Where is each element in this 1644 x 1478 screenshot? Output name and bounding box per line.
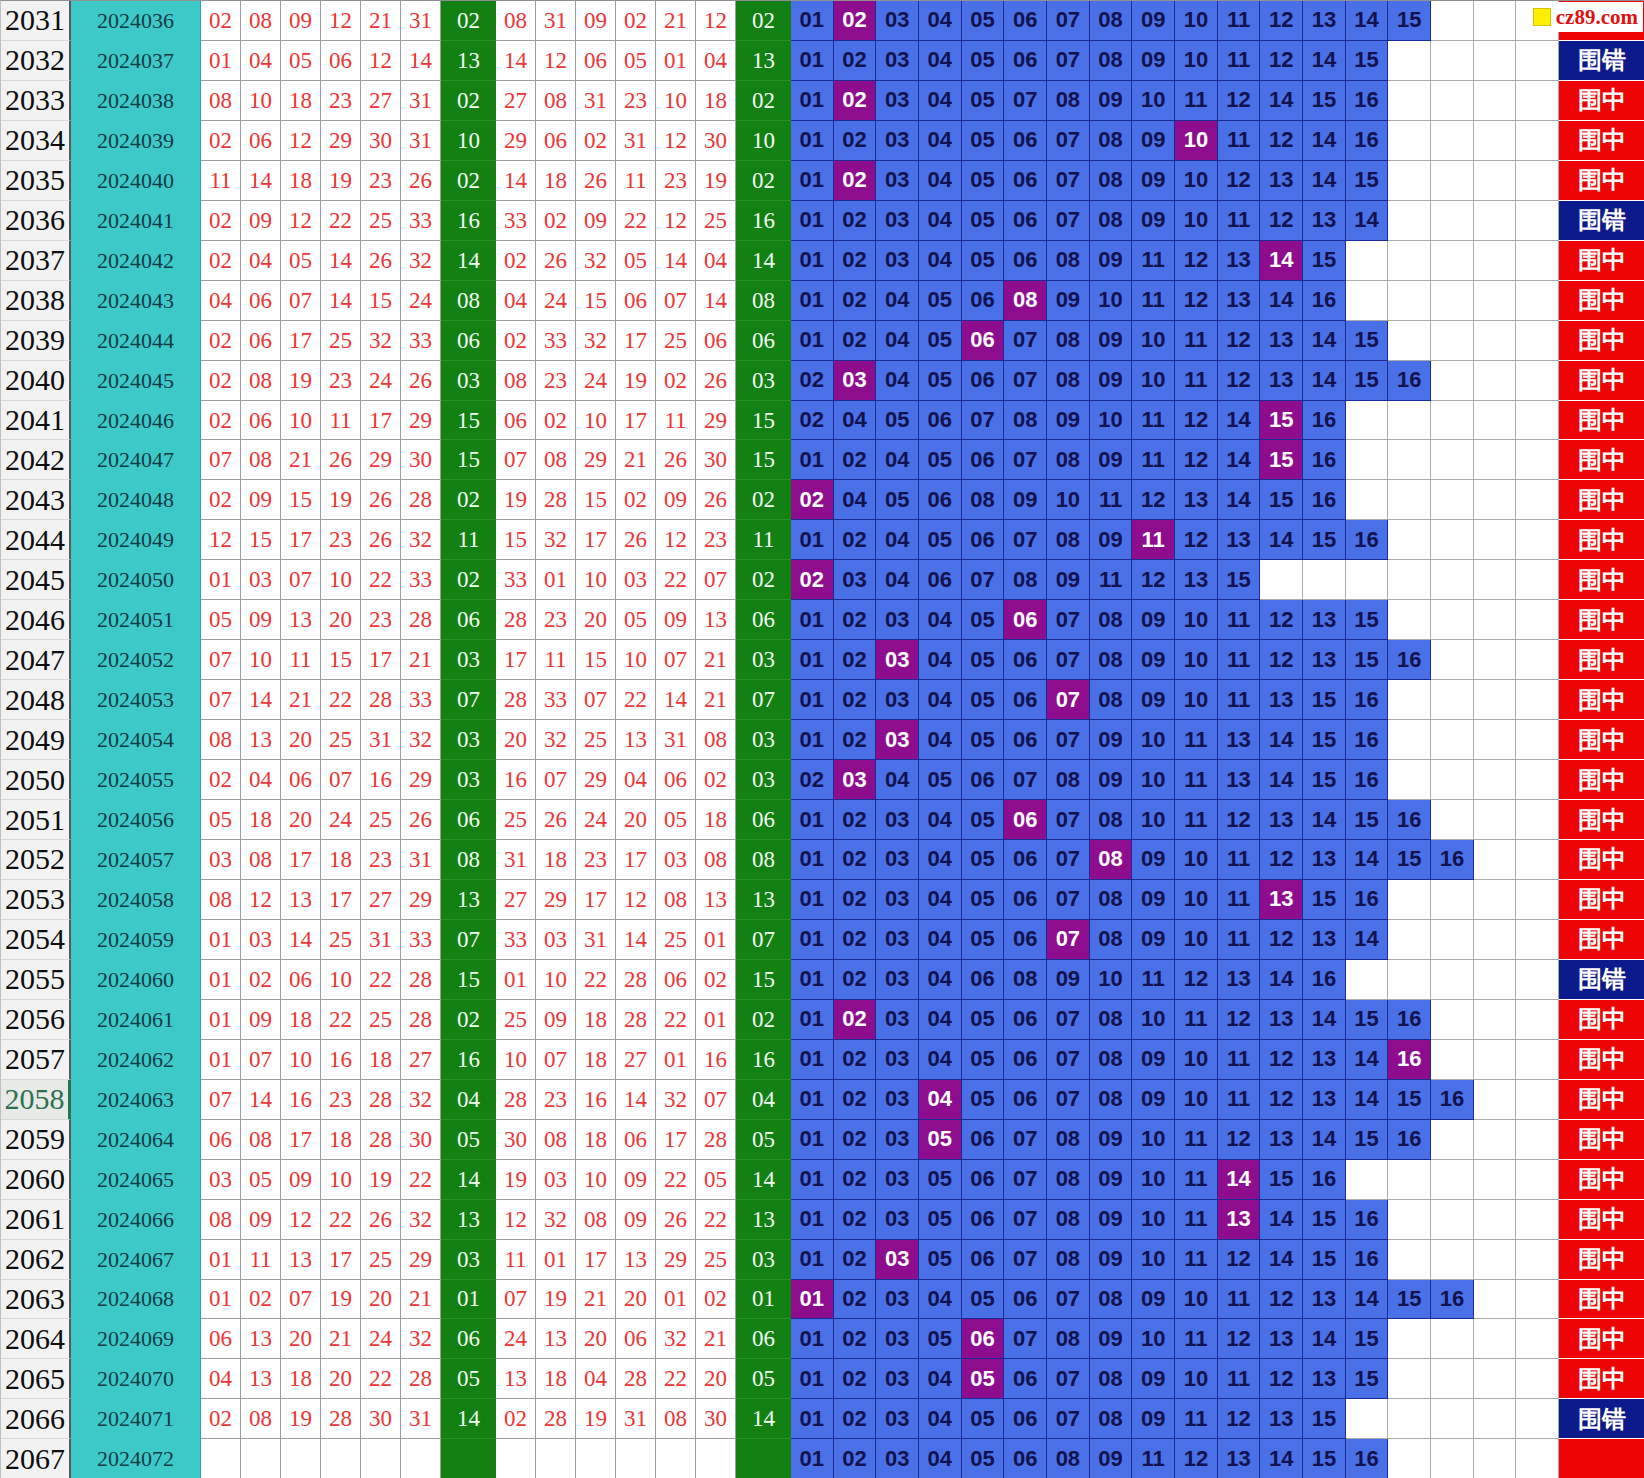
trend-cell: 12 bbox=[1260, 1280, 1303, 1320]
empty-cell bbox=[1431, 201, 1474, 241]
red-ball: 31 bbox=[361, 920, 401, 960]
empty-cell bbox=[1516, 1399, 1559, 1439]
trend-cell: 16 bbox=[1431, 1280, 1474, 1320]
trend-cell: 08 bbox=[1047, 1439, 1090, 1478]
table-row: 2054202405901031425313307330331142501070… bbox=[1, 920, 1644, 960]
empty-cell bbox=[1474, 1399, 1517, 1439]
red-ball: 33 bbox=[401, 321, 441, 361]
empty-cell bbox=[1346, 960, 1389, 1000]
trend-cell: 02 bbox=[834, 840, 877, 880]
trend-cell: 07 bbox=[1047, 1399, 1090, 1439]
red-ball-shuffled: 32 bbox=[536, 720, 576, 760]
trend-cell: 10 bbox=[1132, 321, 1175, 361]
trend-cell: 04 bbox=[919, 960, 962, 1000]
empty-cell bbox=[1474, 480, 1517, 520]
trend-cell-hit: 13 bbox=[1218, 1200, 1261, 1240]
trend-cell: 07 bbox=[1047, 720, 1090, 760]
row-index[interactable]: 2066 bbox=[1, 1399, 71, 1439]
red-ball: 28 bbox=[361, 1080, 401, 1120]
table-row: 2037202404202040514263214022632051404140… bbox=[1, 241, 1644, 281]
period-number: 2024065 bbox=[71, 1160, 201, 1200]
red-ball-shuffled: 17 bbox=[576, 1240, 616, 1280]
trend-cell: 15 bbox=[1303, 1240, 1346, 1280]
row-index[interactable]: 2049 bbox=[1, 720, 71, 760]
trend-cell: 01 bbox=[791, 1319, 834, 1359]
table-row: 2065202407004131820222805131804282220050… bbox=[1, 1359, 1644, 1399]
trend-cell: 10 bbox=[1175, 201, 1218, 241]
red-ball: 05 bbox=[201, 800, 241, 840]
red-ball: 14 bbox=[401, 41, 441, 81]
red-ball-shuffled: 06 bbox=[496, 401, 536, 441]
trend-cell: 09 bbox=[1132, 1399, 1175, 1439]
row-index[interactable]: 2060 bbox=[1, 1160, 71, 1200]
trend-cell: 02 bbox=[834, 800, 877, 840]
red-ball: 10 bbox=[241, 640, 281, 680]
trend-cell: 14 bbox=[1260, 760, 1303, 800]
red-ball-shuffled: 09 bbox=[656, 480, 696, 520]
period-number: 2024061 bbox=[71, 1000, 201, 1040]
row-index[interactable]: 2064 bbox=[1, 1319, 71, 1359]
trend-area: 0102030405060708091011131516 bbox=[791, 680, 1559, 720]
green-ball-repeat: 06 bbox=[736, 800, 791, 840]
red-ball: 28 bbox=[321, 1399, 361, 1439]
red-ball-shuffled: 28 bbox=[616, 1000, 656, 1040]
red-ball: 20 bbox=[321, 1359, 361, 1399]
trend-cell: 10 bbox=[1132, 1319, 1175, 1359]
trend-area: 010203040506070810111213141516 bbox=[791, 1000, 1559, 1040]
empty-cell bbox=[1431, 600, 1474, 640]
row-index[interactable]: 2041 bbox=[1, 401, 71, 441]
red-ball-shuffled: 01 bbox=[496, 960, 536, 1000]
red-ball-shuffled: 31 bbox=[576, 920, 616, 960]
red-ball: 17 bbox=[321, 880, 361, 920]
red-ball-shuffled: 14 bbox=[496, 41, 536, 81]
trend-cell: 04 bbox=[919, 41, 962, 81]
empty-cell bbox=[1516, 1280, 1559, 1320]
empty-cell bbox=[1516, 1040, 1559, 1080]
trend-cell: 10 bbox=[1175, 1040, 1218, 1080]
trend-cell: 02 bbox=[834, 1439, 877, 1478]
trend-cell-hit: 07 bbox=[1047, 920, 1090, 960]
row-index[interactable]: 2054 bbox=[1, 920, 71, 960]
red-ball: 15 bbox=[281, 480, 321, 520]
red-ball: 01 bbox=[201, 560, 241, 600]
red-ball-shuffled: 07 bbox=[496, 1280, 536, 1320]
row-index[interactable]: 2057 bbox=[1, 1040, 71, 1080]
red-ball: 32 bbox=[401, 1080, 441, 1120]
trend-area: 0102030405070809101112141516 bbox=[791, 81, 1559, 121]
row-index[interactable]: 2062 bbox=[1, 1240, 71, 1280]
row-index[interactable]: 2061 bbox=[1, 1200, 71, 1240]
empty-cell bbox=[1431, 1240, 1474, 1280]
trend-cell: 04 bbox=[919, 600, 962, 640]
red-ball bbox=[201, 1439, 241, 1478]
red-ball: 03 bbox=[241, 560, 281, 600]
red-ball: 13 bbox=[281, 880, 321, 920]
red-ball-shuffled: 06 bbox=[616, 1319, 656, 1359]
row-index[interactable]: 2039 bbox=[1, 321, 71, 361]
red-ball-shuffled: 06 bbox=[656, 760, 696, 800]
row-index[interactable]: 2045 bbox=[1, 560, 71, 600]
trend-cell: 11 bbox=[1175, 1319, 1218, 1359]
table-row: 2059202406406081718283005300818061728050… bbox=[1, 1120, 1644, 1160]
trend-cell: 16 bbox=[1346, 1200, 1389, 1240]
empty-cell bbox=[1431, 401, 1474, 441]
trend-cell: 06 bbox=[1004, 840, 1047, 880]
trend-cell: 06 bbox=[962, 440, 1005, 480]
trend-cell-hit: 11 bbox=[1132, 520, 1175, 560]
red-ball-shuffled: 23 bbox=[656, 161, 696, 201]
empty-cell bbox=[1431, 361, 1474, 401]
trend-cell: 12 bbox=[1175, 1439, 1218, 1478]
trend-cell: 11 bbox=[1175, 1200, 1218, 1240]
row-index[interactable]: 2036 bbox=[1, 201, 71, 241]
trend-cell: 12 bbox=[1218, 1319, 1261, 1359]
empty-cell bbox=[1388, 241, 1431, 281]
red-ball-shuffled: 32 bbox=[656, 1319, 696, 1359]
row-index[interactable]: 2031 bbox=[1, 1, 71, 41]
row-index[interactable]: 2043 bbox=[1, 480, 71, 520]
period-number: 2024059 bbox=[71, 920, 201, 960]
result-badge: 围中 bbox=[1559, 401, 1644, 441]
trend-cell: 11 bbox=[1132, 401, 1175, 441]
trend-cell: 12 bbox=[1175, 960, 1218, 1000]
red-ball: 18 bbox=[281, 81, 321, 121]
trend-area: 0102030506070809101112141516 bbox=[791, 1240, 1559, 1280]
trend-cell: 12 bbox=[1218, 1000, 1261, 1040]
empty-cell bbox=[1474, 720, 1517, 760]
period-number: 2024063 bbox=[71, 1080, 201, 1120]
result-badge: 围中 bbox=[1559, 600, 1644, 640]
empty-cell bbox=[1431, 1399, 1474, 1439]
trend-area: 0102030405060708091011121416 bbox=[791, 121, 1559, 161]
red-ball: 25 bbox=[361, 1240, 401, 1280]
trend-cell: 08 bbox=[1090, 201, 1133, 241]
trend-cell: 06 bbox=[1004, 640, 1047, 680]
period-number: 2024064 bbox=[71, 1120, 201, 1160]
red-ball-shuffled: 27 bbox=[496, 880, 536, 920]
trend-area: 0102030405060708091011121314 bbox=[791, 920, 1559, 960]
trend-cell: 02 bbox=[834, 600, 877, 640]
empty-cell bbox=[1474, 440, 1517, 480]
trend-cell: 11 bbox=[1218, 1359, 1261, 1399]
green-ball bbox=[441, 1439, 496, 1478]
trend-cell: 05 bbox=[962, 1000, 1005, 1040]
red-ball-shuffled: 02 bbox=[616, 1, 656, 41]
trend-cell: 05 bbox=[962, 1280, 1005, 1320]
red-ball: 18 bbox=[281, 1000, 321, 1040]
trend-cell: 01 bbox=[791, 281, 834, 321]
red-ball: 29 bbox=[401, 401, 441, 441]
trend-cell: 03 bbox=[876, 41, 919, 81]
red-ball-shuffled: 06 bbox=[536, 121, 576, 161]
green-ball: 08 bbox=[441, 281, 496, 321]
red-ball-shuffled: 07 bbox=[656, 640, 696, 680]
red-ball: 02 bbox=[201, 241, 241, 281]
trend-cell: 05 bbox=[919, 760, 962, 800]
result-badge: 围中 bbox=[1559, 321, 1644, 361]
trend-cell: 13 bbox=[1260, 1319, 1303, 1359]
green-ball-repeat: 13 bbox=[736, 880, 791, 920]
trend-cell: 13 bbox=[1260, 321, 1303, 361]
red-ball: 01 bbox=[201, 1280, 241, 1320]
red-ball-shuffled: 20 bbox=[496, 720, 536, 760]
empty-cell bbox=[1516, 920, 1559, 960]
trend-cell: 14 bbox=[1260, 520, 1303, 560]
red-ball-shuffled: 05 bbox=[696, 1160, 736, 1200]
trend-cell: 08 bbox=[1090, 880, 1133, 920]
trend-cell: 03 bbox=[876, 1000, 919, 1040]
result-badge: 围错 bbox=[1559, 1399, 1644, 1439]
red-ball-shuffled: 25 bbox=[656, 920, 696, 960]
red-ball-shuffled: 22 bbox=[696, 1200, 736, 1240]
red-ball-shuffled: 10 bbox=[576, 1160, 616, 1200]
green-ball: 15 bbox=[441, 440, 496, 480]
result-badge: 围中 bbox=[1559, 1120, 1644, 1160]
trend-cell: 11 bbox=[1175, 1240, 1218, 1280]
row-index[interactable]: 2047 bbox=[1, 640, 71, 680]
trend-cell-hit: 06 bbox=[1004, 800, 1047, 840]
row-index[interactable]: 2048 bbox=[1, 680, 71, 720]
empty-cell bbox=[1474, 121, 1517, 161]
trend-cell: 14 bbox=[1218, 440, 1261, 480]
red-ball: 19 bbox=[281, 361, 321, 401]
row-index[interactable]: 2059 bbox=[1, 1120, 71, 1160]
trend-cell: 02 bbox=[834, 1040, 877, 1080]
empty-cell bbox=[1388, 920, 1431, 960]
red-ball-shuffled: 25 bbox=[576, 720, 616, 760]
watermark: cz89.com bbox=[1528, 2, 1643, 32]
row-index[interactable]: 2056 bbox=[1, 1000, 71, 1040]
red-ball: 02 bbox=[201, 1, 241, 41]
trend-cell: 04 bbox=[919, 161, 962, 201]
red-ball-shuffled: 18 bbox=[576, 1120, 616, 1160]
empty-cell bbox=[1474, 1040, 1517, 1080]
red-ball: 32 bbox=[401, 1200, 441, 1240]
red-ball: 18 bbox=[281, 161, 321, 201]
row-index[interactable]: 2055 bbox=[1, 960, 71, 1000]
trend-cell: 03 bbox=[876, 1439, 919, 1478]
table-row: 2055202406001020610222815011022280602150… bbox=[1, 960, 1644, 1000]
red-ball: 12 bbox=[201, 520, 241, 560]
trend-cell: 07 bbox=[1047, 840, 1090, 880]
table-row: 2042202404707082126293015070829212630150… bbox=[1, 440, 1644, 480]
trend-cell: 14 bbox=[1303, 1319, 1346, 1359]
empty-cell bbox=[1516, 680, 1559, 720]
red-ball: 02 bbox=[201, 480, 241, 520]
red-ball: 19 bbox=[321, 480, 361, 520]
period-number: 2024055 bbox=[71, 760, 201, 800]
trend-cell: 16 bbox=[1388, 640, 1431, 680]
red-ball-shuffled: 08 bbox=[496, 1, 536, 41]
trend-cell: 15 bbox=[1346, 1000, 1389, 1040]
trend-cell: 07 bbox=[962, 401, 1005, 441]
red-ball: 17 bbox=[281, 1120, 321, 1160]
period-number: 2024052 bbox=[71, 640, 201, 680]
green-ball: 02 bbox=[441, 1, 496, 41]
trend-cell: 15 bbox=[1346, 640, 1389, 680]
trend-cell: 02 bbox=[834, 241, 877, 281]
red-ball: 33 bbox=[401, 201, 441, 241]
red-ball: 31 bbox=[361, 720, 401, 760]
empty-cell bbox=[1516, 1000, 1559, 1040]
empty-cell bbox=[1388, 760, 1431, 800]
red-ball-shuffled: 12 bbox=[656, 520, 696, 560]
red-ball-shuffled: 19 bbox=[696, 161, 736, 201]
red-ball-shuffled: 08 bbox=[656, 880, 696, 920]
trend-cell: 05 bbox=[962, 161, 1005, 201]
trend-cell: 07 bbox=[1004, 440, 1047, 480]
trend-cell: 05 bbox=[962, 840, 1005, 880]
row-index[interactable]: 2065 bbox=[1, 1359, 71, 1399]
red-ball: 13 bbox=[241, 720, 281, 760]
trend-cell: 02 bbox=[834, 440, 877, 480]
trend-cell: 08 bbox=[1047, 1120, 1090, 1160]
red-ball: 16 bbox=[321, 1040, 361, 1080]
green-ball-repeat: 02 bbox=[736, 81, 791, 121]
row-index[interactable]: 2044 bbox=[1, 520, 71, 560]
trend-cell: 16 bbox=[1346, 520, 1389, 560]
red-ball: 15 bbox=[361, 281, 401, 321]
green-ball-repeat: 15 bbox=[736, 401, 791, 441]
period-number: 2024036 bbox=[71, 1, 201, 41]
row-index[interactable]: 2037 bbox=[1, 241, 71, 281]
trend-cell: 11 bbox=[1090, 480, 1133, 520]
trend-cell: 04 bbox=[919, 1439, 962, 1478]
row-index[interactable]: 2067 bbox=[1, 1439, 71, 1478]
trend-cell: 07 bbox=[1047, 600, 1090, 640]
red-ball: 08 bbox=[241, 440, 281, 480]
row-index[interactable]: 2034 bbox=[1, 121, 71, 161]
trend-cell: 01 bbox=[791, 960, 834, 1000]
trend-cell: 11 bbox=[1218, 840, 1261, 880]
trend-cell: 07 bbox=[1047, 1, 1090, 41]
trend-cell-hit: 15 bbox=[1260, 440, 1303, 480]
red-ball: 28 bbox=[401, 1359, 441, 1399]
trend-cell: 02 bbox=[834, 121, 877, 161]
green-ball: 16 bbox=[441, 1040, 496, 1080]
red-ball-shuffled: 11 bbox=[536, 640, 576, 680]
red-ball-shuffled: 28 bbox=[536, 480, 576, 520]
red-ball: 12 bbox=[281, 121, 321, 161]
trend-cell: 07 bbox=[1047, 121, 1090, 161]
trend-cell: 03 bbox=[876, 880, 919, 920]
green-ball: 13 bbox=[441, 880, 496, 920]
trend-cell: 13 bbox=[1303, 1080, 1346, 1120]
red-ball-shuffled: 26 bbox=[536, 800, 576, 840]
empty-cell bbox=[1474, 1, 1517, 41]
period-number: 2024038 bbox=[71, 81, 201, 121]
row-index[interactable]: 2035 bbox=[1, 161, 71, 201]
red-ball: 06 bbox=[241, 121, 281, 161]
trend-cell: 08 bbox=[1047, 1319, 1090, 1359]
trend-cell: 12 bbox=[1218, 800, 1261, 840]
row-index[interactable]: 2052 bbox=[1, 840, 71, 880]
result-badge: 围中 bbox=[1559, 720, 1644, 760]
red-ball: 25 bbox=[321, 720, 361, 760]
empty-cell bbox=[1474, 680, 1517, 720]
red-ball: 22 bbox=[361, 960, 401, 1000]
red-ball-shuffled: 04 bbox=[696, 241, 736, 281]
red-ball: 11 bbox=[241, 1240, 281, 1280]
row-index[interactable]: 2058 bbox=[1, 1080, 71, 1120]
red-ball-shuffled: 07 bbox=[656, 281, 696, 321]
red-ball-shuffled: 28 bbox=[496, 1080, 536, 1120]
red-ball: 10 bbox=[281, 401, 321, 441]
empty-cell bbox=[1388, 1160, 1431, 1200]
red-ball: 10 bbox=[321, 1160, 361, 1200]
trend-cell: 15 bbox=[1388, 1, 1431, 41]
row-index[interactable]: 2051 bbox=[1, 800, 71, 840]
red-ball-shuffled bbox=[496, 1439, 536, 1478]
period-number: 2024056 bbox=[71, 800, 201, 840]
row-index[interactable]: 2038 bbox=[1, 281, 71, 321]
red-ball-shuffled: 22 bbox=[616, 680, 656, 720]
row-index[interactable]: 2042 bbox=[1, 440, 71, 480]
red-ball-shuffled: 25 bbox=[496, 800, 536, 840]
row-index[interactable]: 2046 bbox=[1, 600, 71, 640]
row-index[interactable]: 2053 bbox=[1, 880, 71, 920]
row-index[interactable]: 2063 bbox=[1, 1280, 71, 1320]
empty-cell bbox=[1346, 480, 1389, 520]
trend-cell: 09 bbox=[1090, 81, 1133, 121]
red-ball: 05 bbox=[241, 1160, 281, 1200]
trend-cell: 07 bbox=[1004, 1160, 1047, 1200]
empty-cell bbox=[1346, 1160, 1389, 1200]
green-ball-repeat: 14 bbox=[736, 1160, 791, 1200]
empty-cell bbox=[1516, 760, 1559, 800]
red-ball-shuffled: 20 bbox=[616, 800, 656, 840]
row-index[interactable]: 2032 bbox=[1, 41, 71, 81]
red-ball: 26 bbox=[401, 800, 441, 840]
trend-cell: 02 bbox=[834, 281, 877, 321]
red-ball: 29 bbox=[401, 880, 441, 920]
trend-cell: 15 bbox=[1218, 560, 1261, 600]
row-index[interactable]: 2050 bbox=[1, 760, 71, 800]
red-ball: 32 bbox=[361, 321, 401, 361]
red-ball: 15 bbox=[241, 520, 281, 560]
trend-cell: 11 bbox=[1132, 281, 1175, 321]
empty-cell bbox=[1474, 1160, 1517, 1200]
red-ball-shuffled: 04 bbox=[496, 281, 536, 321]
row-index[interactable]: 2033 bbox=[1, 81, 71, 121]
red-ball: 28 bbox=[361, 1120, 401, 1160]
trend-cell: 12 bbox=[1175, 401, 1218, 441]
result-badge: 围中 bbox=[1559, 1080, 1644, 1120]
row-index[interactable]: 2040 bbox=[1, 361, 71, 401]
trend-cell: 04 bbox=[919, 1359, 962, 1399]
trend-cell: 04 bbox=[919, 640, 962, 680]
red-ball: 28 bbox=[401, 1000, 441, 1040]
trend-cell: 05 bbox=[962, 241, 1005, 281]
empty-cell bbox=[1346, 440, 1389, 480]
trend-cell: 12 bbox=[1260, 201, 1303, 241]
red-ball-shuffled: 17 bbox=[496, 640, 536, 680]
red-ball: 11 bbox=[281, 640, 321, 680]
result-badge: 围中 bbox=[1559, 800, 1644, 840]
trend-cell: 03 bbox=[876, 121, 919, 161]
trend-cell: 10 bbox=[1175, 920, 1218, 960]
red-ball: 08 bbox=[241, 1120, 281, 1160]
trend-cell: 14 bbox=[1346, 920, 1389, 960]
red-ball-shuffled: 22 bbox=[656, 1000, 696, 1040]
red-ball: 24 bbox=[361, 361, 401, 401]
period-number: 2024048 bbox=[71, 480, 201, 520]
red-ball-shuffled: 15 bbox=[576, 281, 616, 321]
green-ball: 03 bbox=[441, 720, 496, 760]
trend-cell: 05 bbox=[962, 680, 1005, 720]
trend-cell: 10 bbox=[1175, 1359, 1218, 1399]
